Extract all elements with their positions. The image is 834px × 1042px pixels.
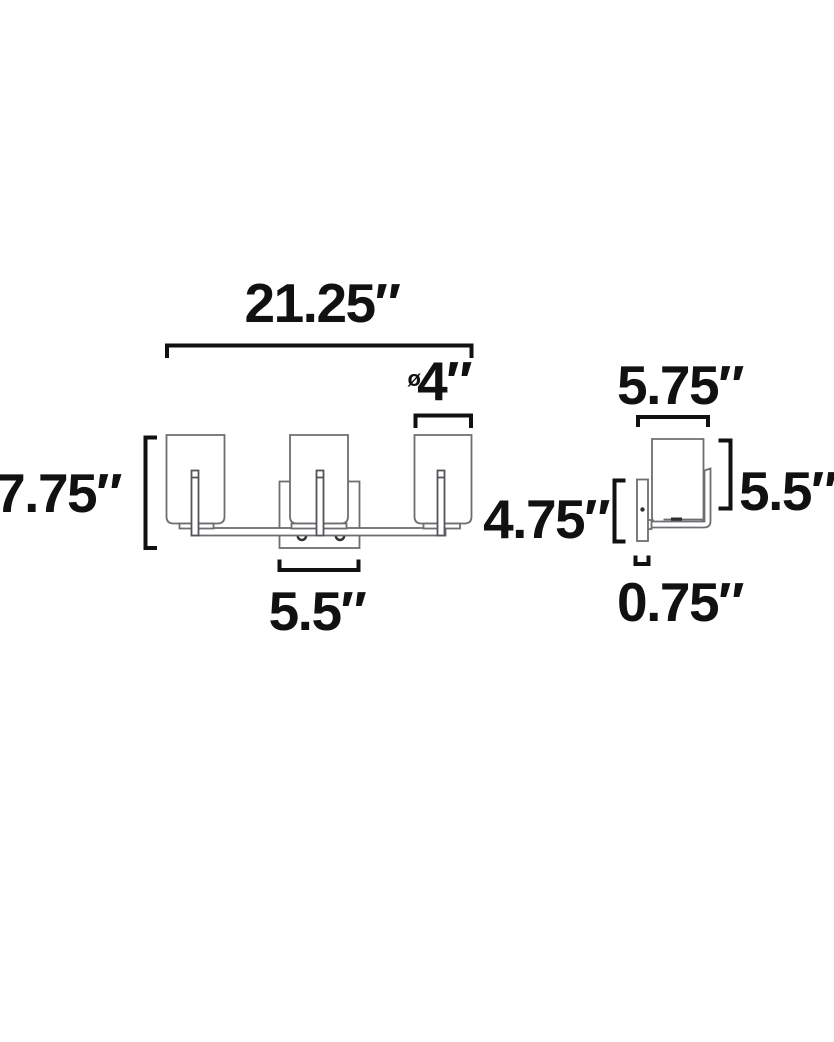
vanity-light-dimension-diagram: 21.25″ ø 4″ 7.75″ [0, 0, 834, 1042]
front-view: 21.25″ ø 4″ 7.75″ [0, 272, 472, 642]
dim-label-shade-height: 5.5″ [739, 460, 834, 522]
diagram-canvas: 21.25″ ø 4″ 7.75″ [0, 0, 834, 1042]
dim-bracket-backplate-depth [636, 556, 649, 565]
dim-label-backplate-depth: 0.75″ [617, 571, 744, 633]
dim-bracket-overall-depth [638, 417, 708, 427]
front-stem-right [438, 471, 445, 536]
side-backplate-screw [640, 507, 644, 511]
side-view: 5.75″ 5.5″ 4.75″ 0.75″ [483, 354, 834, 633]
front-stem-center [317, 471, 324, 536]
dim-bracket-overall-height [146, 438, 158, 549]
front-stem-left [192, 471, 199, 536]
dim-label-shade-diameter: 4″ [417, 350, 472, 412]
side-shade [652, 439, 704, 523]
dim-label-overall-depth: 5.75″ [617, 354, 744, 416]
dim-bracket-backplate-height [615, 481, 626, 542]
dim-bracket-shade-height [719, 441, 731, 509]
dim-label-canopy-width: 5.5″ [269, 580, 367, 642]
dim-label-overall-height: 7.75″ [0, 462, 122, 524]
dim-label-overall-width: 21.25″ [245, 272, 401, 334]
dim-bracket-shade-diameter [416, 416, 472, 429]
dim-bracket-canopy-width [280, 560, 359, 571]
dim-label-backplate-height: 4.75″ [483, 488, 610, 550]
